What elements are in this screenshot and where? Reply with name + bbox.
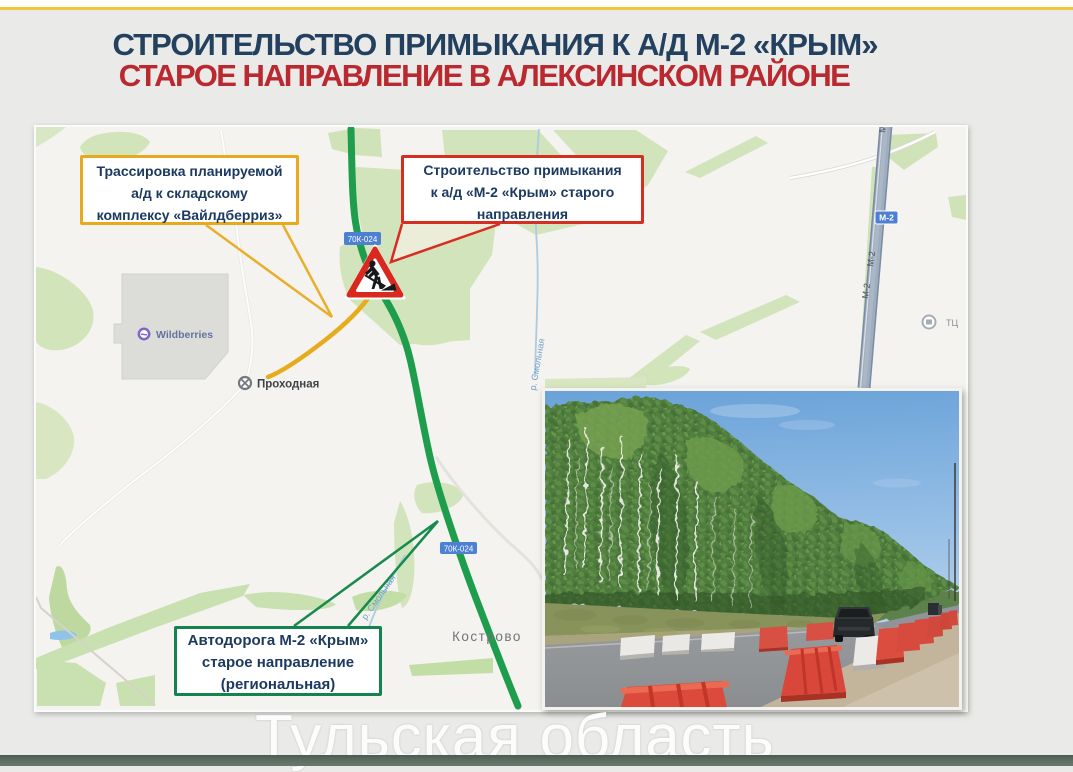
svg-text:Проходная: Проходная [257,379,319,391]
svg-text:Кострово: Кострово [452,629,522,644]
svg-text:70К-024: 70К-024 [444,545,474,554]
svg-text:М-2: М-2 [865,251,877,268]
svg-text:70К-024: 70К-024 [348,235,378,244]
svg-text:Wildberries: Wildberries [156,329,213,341]
svg-text:ТЦ: ТЦ [946,318,958,328]
svg-text:М-2: М-2 [879,213,894,223]
svg-text:М-2: М-2 [860,283,872,300]
